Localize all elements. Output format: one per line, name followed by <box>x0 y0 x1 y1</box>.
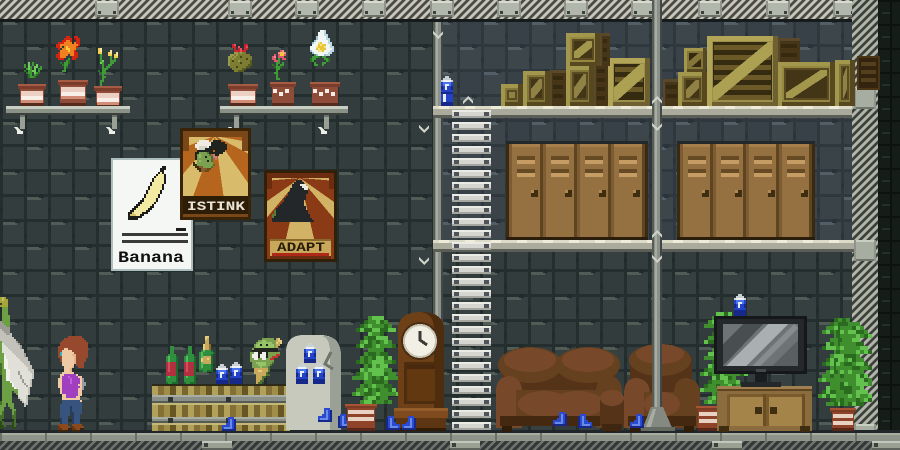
svg-text:Banana: Banana <box>118 249 184 267</box>
svg-text:ADAPT: ADAPT <box>277 240 325 255</box>
svg-text:ISTINK: ISTINK <box>187 199 245 214</box>
